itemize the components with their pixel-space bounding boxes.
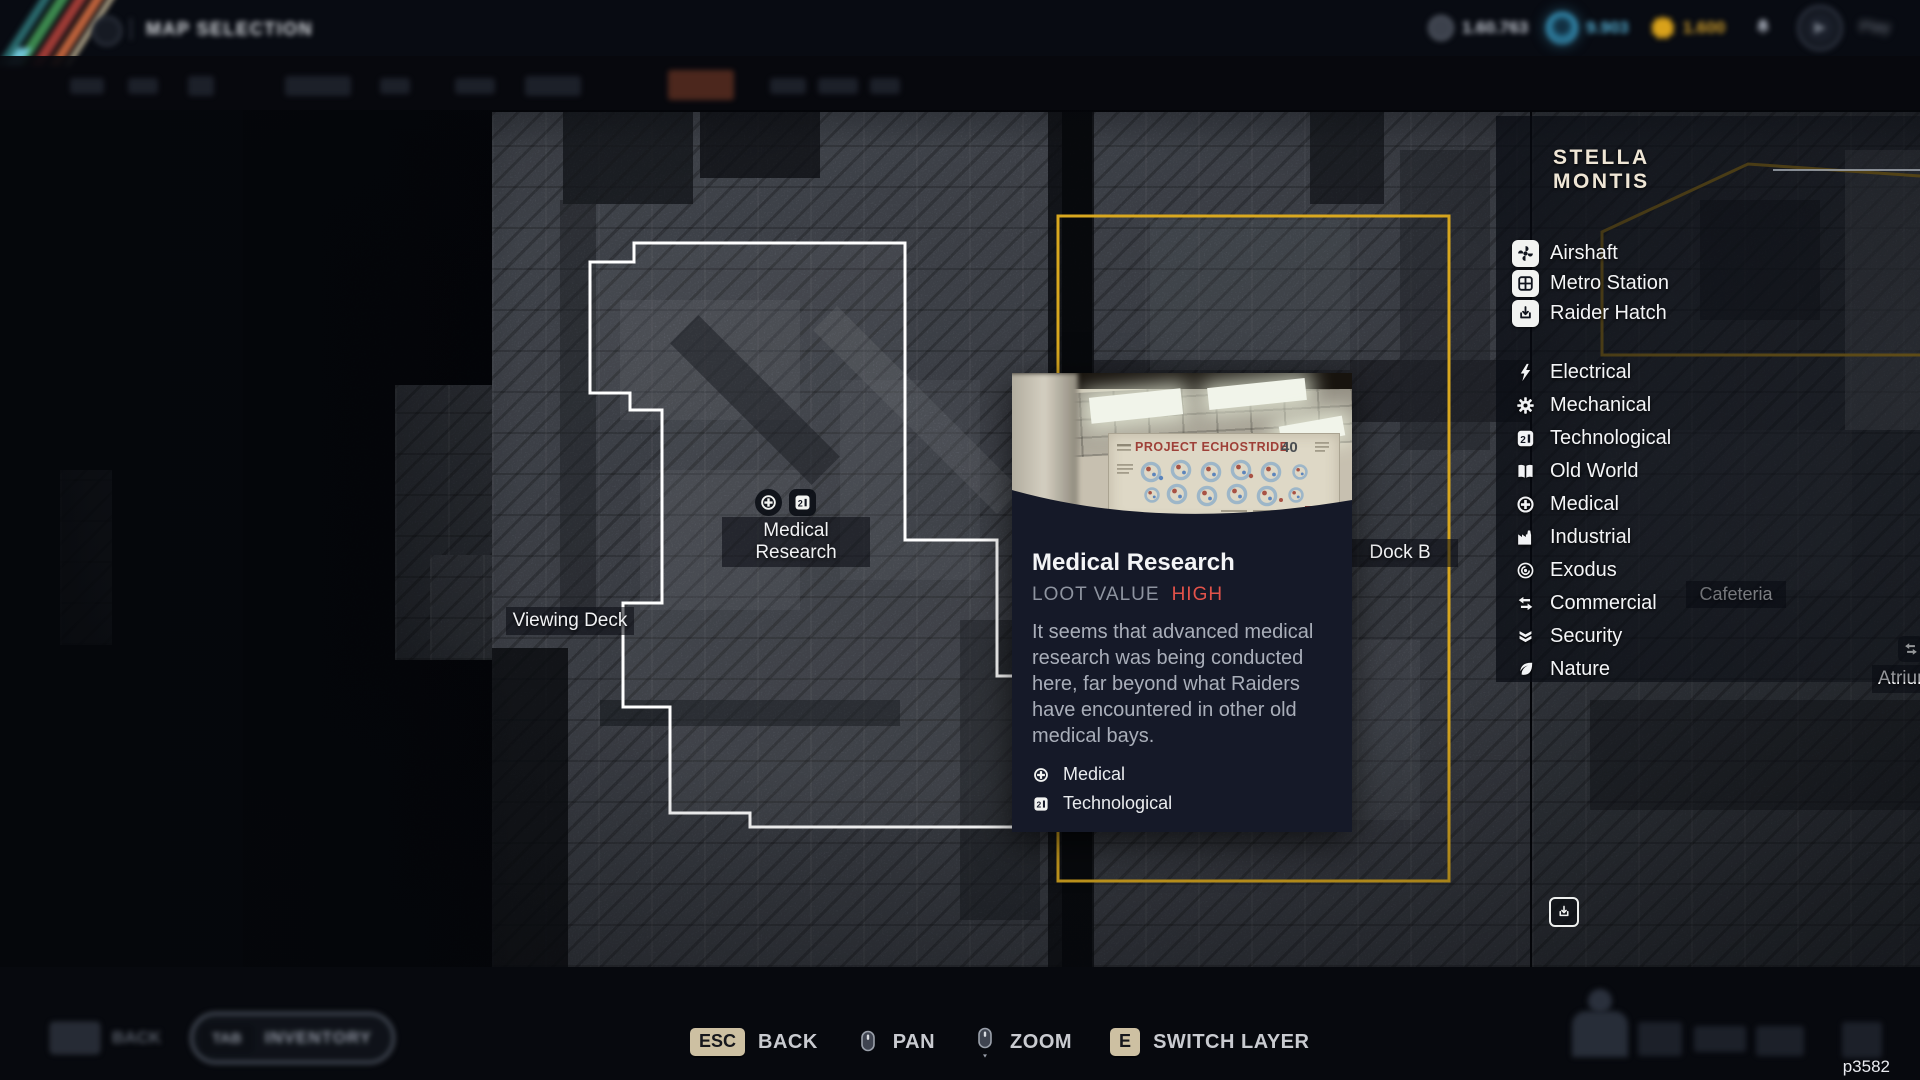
tooltip-title: Medical Research <box>1032 549 1332 577</box>
tooltip-tag-medical: Medical <box>1032 764 1332 785</box>
raider-hatch-icon <box>1512 300 1539 327</box>
map-label-dock-b: Dock B <box>1342 539 1458 567</box>
active-tab-highlight <box>668 70 734 100</box>
currency-value: 1.600 <box>1683 18 1726 38</box>
legend-panel: STELLA MONTIS Airshaft Metro Station Rai… <box>1512 146 1920 683</box>
map-label-viewing-deck: Viewing Deck <box>506 607 634 635</box>
electrical-icon <box>1512 362 1539 383</box>
hint-label: BACK <box>758 1031 818 1054</box>
currency-value: 9.903 <box>1586 18 1629 38</box>
hint-bar: ESC BACK PAN ZOOM E SWITCH LAYER <box>690 1022 1309 1062</box>
legend-item-label: Technological <box>1550 427 1671 450</box>
hint-zoom: ZOOM <box>973 1026 1072 1059</box>
background-tab-row <box>0 56 1920 110</box>
legend-item-label: Mechanical <box>1550 394 1651 417</box>
mechanical-icon <box>1512 395 1539 416</box>
technological-icon <box>1032 795 1050 813</box>
legend-item-metro-station[interactable]: Metro Station <box>1512 270 1920 297</box>
mouse-zoom-icon <box>973 1026 997 1059</box>
legend-item-old-world[interactable]: Old World <box>1512 457 1920 485</box>
gold-gear-icon <box>1651 16 1675 40</box>
airshaft-icon <box>1512 240 1539 267</box>
tag-label: Medical <box>1063 764 1125 785</box>
esc-key-badge: ESC <box>690 1028 745 1056</box>
legend-item-label: Electrical <box>1550 361 1631 384</box>
tooltip-loot-row: LOOT VALUEHIGH <box>1032 584 1332 606</box>
exodus-icon <box>1512 560 1539 581</box>
legend-item-label: Nature <box>1550 658 1610 681</box>
divider <box>130 18 132 40</box>
hint-switch-layer: E SWITCH LAYER <box>1110 1028 1309 1056</box>
hint-label: PAN <box>893 1031 935 1054</box>
tooltip-description: It seems that advanced medical research … <box>1032 619 1332 749</box>
tab-key-badge: TAB <box>201 1025 253 1052</box>
legend-item-mechanical[interactable]: Mechanical <box>1512 391 1920 419</box>
back-key-badge <box>50 1022 100 1054</box>
loot-value-label: LOOT VALUE <box>1032 584 1160 605</box>
energy-orb-icon <box>1546 12 1578 44</box>
currency-bar: 1.60.763 9.903 1.600 Play <box>1428 0 1890 56</box>
medical-icon <box>1032 766 1050 784</box>
inventory-button: TAB INVENTORY <box>190 1012 395 1064</box>
metro-station-icon <box>1512 270 1539 297</box>
hint-label: SWITCH LAYER <box>1153 1031 1309 1054</box>
game-screen: Medical Research Viewing Deck Dock B Caf… <box>0 0 1920 1080</box>
legend-item-raider-hatch[interactable]: Raider Hatch <box>1512 300 1920 327</box>
legend-item-label: Exodus <box>1550 559 1617 582</box>
map-label-medical-research: Medical Research <box>722 517 870 567</box>
legend-item-label: Raider Hatch <box>1550 302 1667 325</box>
legend-item-commercial[interactable]: Commercial <box>1512 589 1920 617</box>
legend-item-label: Commercial <box>1550 592 1657 615</box>
tooltip-tags: Medical Technological <box>1032 764 1332 814</box>
security-icon <box>1512 626 1539 647</box>
legend-category-list: Electrical Mechanical Technological Old … <box>1512 358 1920 683</box>
location-tooltip: PROJECT ECHOSTRIDE 40 <box>1012 373 1352 832</box>
legend-item-label: Medical <box>1550 493 1619 516</box>
character-icon <box>1588 989 1612 1013</box>
play-button[interactable] <box>1797 5 1843 51</box>
legend-item-label: Old World <box>1550 460 1639 483</box>
top-bar: MAP SELECTION 1.60.763 9.903 1.600 Play <box>0 0 1920 56</box>
photo-curve-overlay <box>1012 476 1352 535</box>
currency-value: 1.60.763 <box>1462 18 1528 38</box>
industrial-icon <box>1512 527 1539 548</box>
hint-label: ZOOM <box>1010 1031 1072 1054</box>
old-world-icon <box>1512 461 1539 482</box>
poster-title: PROJECT ECHOSTRIDE <box>1135 440 1288 454</box>
legend-item-technological[interactable]: Technological <box>1512 424 1920 452</box>
legend-item-airshaft[interactable]: Airshaft <box>1512 240 1920 267</box>
commercial-icon <box>1512 593 1539 614</box>
poster-number: 40 <box>1281 439 1298 456</box>
legend-item-exodus[interactable]: Exodus <box>1512 556 1920 584</box>
technological-icon <box>789 489 816 516</box>
poi-medical-research[interactable] <box>755 489 816 516</box>
legend-item-nature[interactable]: Nature <box>1512 655 1920 683</box>
nature-icon <box>1512 659 1539 680</box>
play-label: Play <box>1859 19 1890 37</box>
legend-title-rule <box>1773 169 1920 171</box>
tag-label: Technological <box>1063 793 1172 814</box>
back-label: BACK <box>112 1028 161 1048</box>
hint-pan: PAN <box>856 1029 935 1055</box>
legend-item-electrical[interactable]: Electrical <box>1512 358 1920 386</box>
legend-item-medical[interactable]: Medical <box>1512 490 1920 518</box>
legend-item-label: Security <box>1550 625 1622 648</box>
legend-marker-list: Airshaft Metro Station Raider Hatch <box>1512 240 1920 327</box>
medical-icon <box>1512 494 1539 515</box>
legend-item-label: Industrial <box>1550 526 1631 549</box>
bell-icon[interactable] <box>1751 16 1775 40</box>
legend-item-security[interactable]: Security <box>1512 622 1920 650</box>
raider-hatch-marker[interactable] <box>1549 897 1579 927</box>
coin-icon <box>1428 15 1454 41</box>
medical-icon <box>755 489 782 516</box>
mouse-pan-icon <box>856 1029 880 1055</box>
player-tag: p3582 <box>1843 1057 1890 1077</box>
page-title: MAP SELECTION <box>146 19 313 40</box>
legend-item-label: Airshaft <box>1550 242 1618 265</box>
legend-title: STELLA MONTIS <box>1553 146 1751 194</box>
character-icon <box>1572 1011 1628 1057</box>
location-photo: PROJECT ECHOSTRIDE 40 <box>1012 373 1352 535</box>
inventory-label: INVENTORY <box>265 1028 372 1048</box>
e-key-badge: E <box>1110 1028 1140 1056</box>
tooltip-tag-technological: Technological <box>1032 793 1332 814</box>
legend-item-label: Metro Station <box>1550 272 1669 295</box>
technological-icon <box>1512 428 1539 449</box>
hint-back: ESC BACK <box>690 1028 818 1056</box>
legend-item-industrial[interactable]: Industrial <box>1512 523 1920 551</box>
menu-icon[interactable] <box>92 16 122 46</box>
loot-value: HIGH <box>1172 584 1224 605</box>
